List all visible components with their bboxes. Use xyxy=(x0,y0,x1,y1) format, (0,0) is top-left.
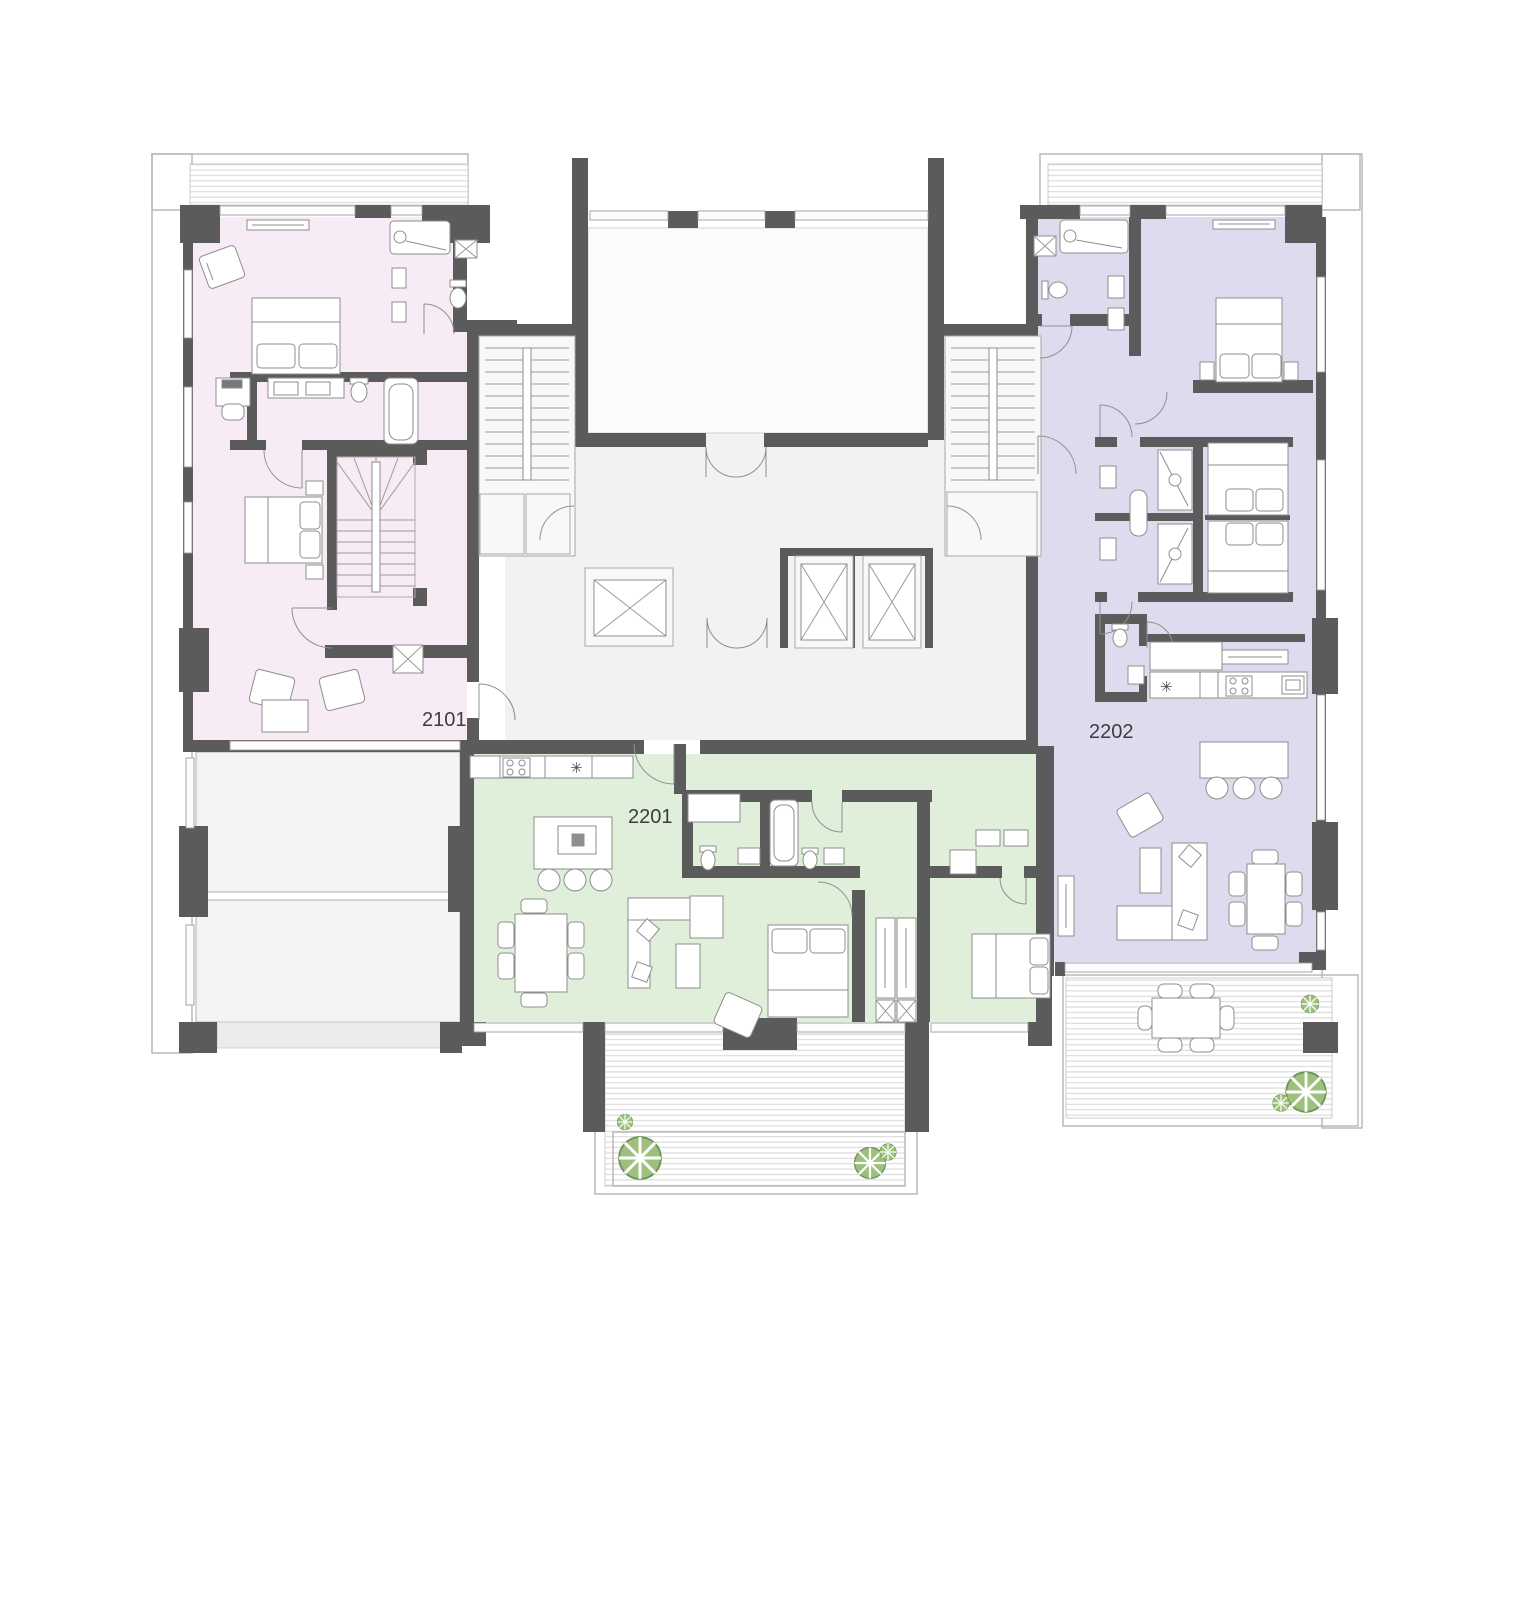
fridge-icon: ✳ xyxy=(570,759,583,777)
chair xyxy=(568,922,584,948)
pillow xyxy=(810,929,845,953)
pillow xyxy=(1226,489,1253,511)
sink xyxy=(392,268,406,288)
deck-top-left xyxy=(190,164,468,205)
plant xyxy=(1286,1072,1326,1112)
plant xyxy=(880,1144,897,1161)
floor-plan-canvas: ✳ ✳ 2101 2201 2202 xyxy=(0,0,1524,1600)
pillow xyxy=(1030,967,1048,994)
dining-table xyxy=(1247,864,1285,934)
dining-table xyxy=(515,914,567,992)
nightstand xyxy=(306,565,323,579)
stair-stringer-west xyxy=(523,348,531,480)
stool xyxy=(1206,777,1228,799)
basin xyxy=(306,382,330,395)
cooktop xyxy=(1226,676,1252,696)
outdoor-chair xyxy=(1138,1006,1152,1030)
bathtub-inner xyxy=(774,805,794,861)
monitor xyxy=(222,380,242,388)
stool xyxy=(538,869,560,891)
sink xyxy=(824,848,844,864)
core-closet-2 xyxy=(526,494,570,554)
toilet-tank xyxy=(450,280,466,287)
closet xyxy=(950,850,976,874)
bathtub-inner xyxy=(389,384,413,440)
chair xyxy=(1229,902,1245,926)
pillow xyxy=(772,929,807,953)
void-room xyxy=(588,228,928,433)
sofa-chaise xyxy=(690,896,723,938)
stair-stringer-east xyxy=(989,348,997,480)
nightstand xyxy=(306,481,323,495)
sink xyxy=(1100,538,1116,560)
sink xyxy=(738,848,760,864)
outdoor-chair xyxy=(1190,984,1214,998)
chair xyxy=(498,922,514,948)
pillow xyxy=(1252,354,1281,378)
nightstand xyxy=(1200,362,1214,380)
cooktop xyxy=(503,758,530,777)
pillow xyxy=(299,344,337,368)
unit-label-2202: 2202 xyxy=(1089,721,1134,743)
outdoor-chair xyxy=(1190,1038,1214,1052)
sink xyxy=(976,830,1000,846)
basin xyxy=(274,382,298,395)
kitchen-island xyxy=(1200,742,1288,778)
kitchen-counter xyxy=(470,756,633,778)
plant xyxy=(617,1114,632,1129)
chair xyxy=(1286,902,1302,926)
outdoor-chair xyxy=(1220,1006,1234,1030)
coffee-table xyxy=(676,944,700,988)
pillow xyxy=(1030,938,1048,965)
toilet-bowl xyxy=(450,288,466,308)
toilet-bowl xyxy=(803,851,817,869)
deck-top-right xyxy=(1048,164,1322,205)
closet xyxy=(688,794,740,822)
chair xyxy=(1229,872,1245,896)
shower-drain xyxy=(1064,230,1076,242)
stool xyxy=(590,869,612,891)
side-table xyxy=(1140,848,1161,893)
stool xyxy=(564,869,586,891)
chair xyxy=(1252,850,1278,864)
unassigned-room-1 xyxy=(196,752,460,892)
laundry-column xyxy=(1130,490,1147,536)
outdoor-chair xyxy=(1158,984,1182,998)
toilet-bowl xyxy=(701,850,715,870)
toilet-bowl xyxy=(351,382,367,402)
chair xyxy=(568,953,584,979)
plant xyxy=(1301,995,1319,1013)
unit-label-2201: 2201 xyxy=(628,806,673,828)
core-closet-1 xyxy=(480,494,524,554)
chair xyxy=(1252,936,1278,950)
unassigned-room-2 xyxy=(196,900,460,1022)
sofa-l-top xyxy=(628,898,690,920)
pillow xyxy=(300,502,320,529)
plant xyxy=(619,1137,661,1179)
toilet-tank xyxy=(1042,281,1048,299)
stool xyxy=(1260,777,1282,799)
sink xyxy=(392,302,406,322)
floor-plan-drawing: ✳ ✳ 2101 2201 2202 xyxy=(0,0,1524,1600)
nightstand xyxy=(1284,362,1298,380)
sink xyxy=(1100,466,1116,488)
core-closet-3 xyxy=(947,492,1037,556)
chair xyxy=(521,899,547,913)
lower-step-strip xyxy=(217,1022,460,1048)
outdoor-chair xyxy=(1158,1038,1182,1052)
sink xyxy=(1108,308,1124,330)
shower-drain xyxy=(394,231,406,243)
toilet-bowl xyxy=(1113,629,1127,647)
outdoor-table xyxy=(1152,998,1220,1038)
chair xyxy=(521,993,547,1007)
sink xyxy=(1108,276,1124,298)
pillow xyxy=(1256,523,1283,545)
sink xyxy=(1004,830,1028,846)
pillow xyxy=(257,344,295,368)
pillow xyxy=(1226,523,1253,545)
chair xyxy=(1286,872,1302,896)
stool xyxy=(1233,777,1255,799)
pillow xyxy=(1256,489,1283,511)
pillow xyxy=(300,531,320,558)
kitchen-counter xyxy=(1150,642,1222,670)
sink xyxy=(1128,666,1144,684)
sofa-l-bottom xyxy=(1117,906,1172,940)
plant xyxy=(1273,1095,1290,1112)
unit-label-2101: 2101 xyxy=(422,709,467,731)
toilet-bowl xyxy=(1049,282,1067,298)
fridge-icon: ✳ xyxy=(1160,678,1173,696)
coffee-table xyxy=(262,700,308,732)
pillow xyxy=(1220,354,1249,378)
chair xyxy=(498,953,514,979)
desk-chair xyxy=(222,404,244,420)
